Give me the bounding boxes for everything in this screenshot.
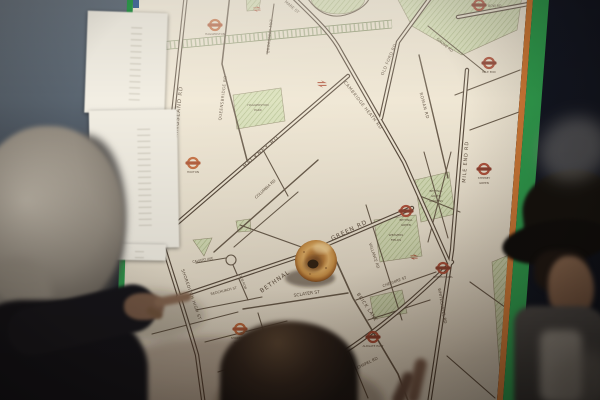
pinned-paper	[84, 11, 168, 116]
board-edge-corner-blue	[133, 0, 139, 8]
photo-scene: KINGSLAND RD QUEENSBRIDGE RD BROADWAY MK…	[0, 0, 600, 400]
bagel-hole	[308, 260, 319, 269]
